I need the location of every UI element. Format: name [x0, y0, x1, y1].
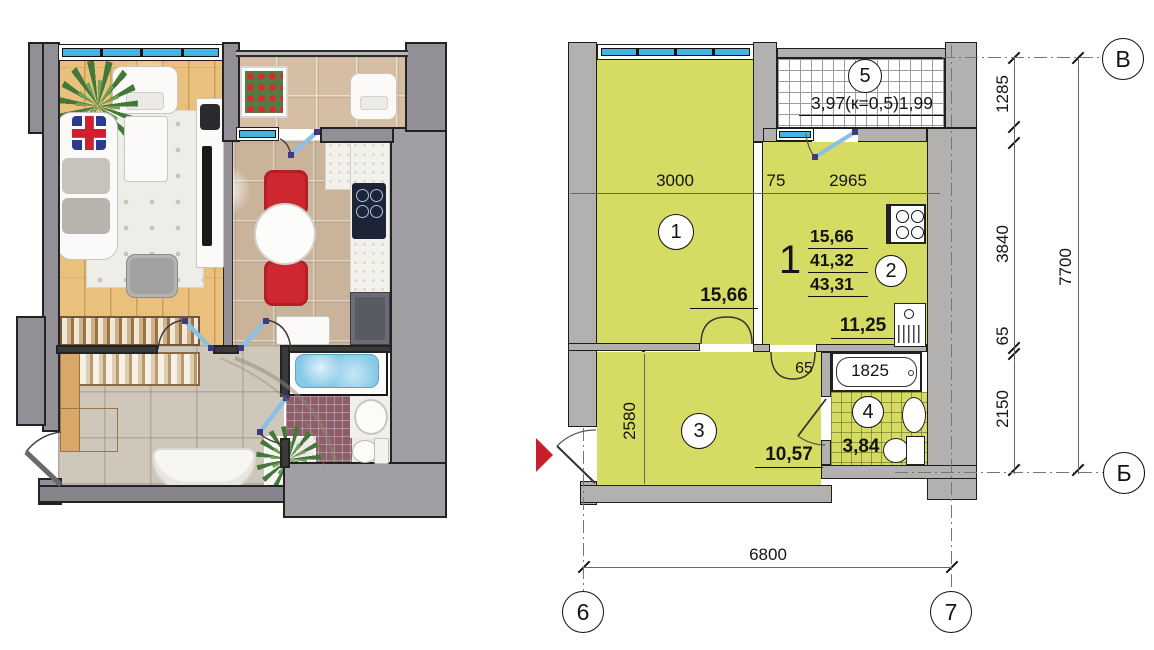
sink-icon — [894, 303, 926, 347]
wall — [56, 345, 158, 354]
wall — [568, 42, 597, 427]
room-number-balcony: 5 — [848, 59, 882, 93]
axis-label-v: В — [1102, 38, 1144, 80]
wall — [568, 343, 700, 351]
wall — [945, 42, 977, 128]
dimension-line-hall — [644, 354, 645, 484]
dim-7700: 7700 — [1056, 237, 1076, 297]
wall — [821, 352, 831, 397]
toilet-tank-icon — [374, 438, 389, 464]
floor-plan-sheet: 1 2 3 4 5 15,66 11,25 10,57 3,84 3,97(к=… — [0, 0, 1154, 650]
dining-table-icon — [254, 203, 316, 265]
wall — [280, 438, 290, 468]
room-number-living: 1 — [658, 214, 694, 250]
room-number-kitchen: 2 — [875, 255, 907, 287]
dim-65-right: 65 — [993, 306, 1013, 366]
stove-icon — [886, 204, 926, 244]
bathtub-icon — [286, 346, 388, 396]
entry-arrow-icon — [536, 438, 553, 472]
wall — [753, 42, 777, 142]
area-balcony: 3,97(к=0,5)1,99 — [799, 93, 945, 116]
balcony-door-opening — [812, 128, 858, 142]
dim-1285: 1285 — [993, 64, 1013, 124]
flower-box-icon — [240, 66, 288, 118]
summary-areas: 15,66 41,32 43,31 — [808, 226, 868, 297]
wall — [16, 316, 46, 426]
summary-room-count: 1 — [778, 238, 802, 286]
window-mullion — [636, 48, 639, 56]
axis-label-7: 7 — [930, 591, 972, 633]
coffee-table-icon — [124, 116, 168, 182]
dimension-line-bottom — [584, 567, 952, 568]
washbasin-icon — [902, 397, 926, 433]
sofa-cushion-icon — [62, 158, 110, 194]
union-jack-pillow-icon — [72, 116, 106, 150]
area-hall: 10,57 — [755, 444, 823, 468]
window-mullion — [140, 48, 143, 57]
area-bath: 3,84 — [836, 436, 886, 458]
bathtub-length-label: 1825 — [840, 361, 900, 381]
area-kitchen: 11,25 — [831, 315, 895, 339]
dim-6800: 6800 — [738, 545, 798, 565]
axis-label-6: 6 — [562, 591, 604, 633]
dim-2580: 2580 — [620, 391, 640, 451]
wall — [280, 345, 392, 353]
balcony-outer-wall — [777, 48, 947, 58]
window-mullion — [100, 48, 103, 57]
axis-line-7 — [951, 45, 952, 591]
kitchen-sink-unit-icon — [350, 292, 390, 345]
stove-icon — [352, 183, 386, 239]
wall — [580, 485, 832, 503]
wall — [283, 462, 447, 518]
chair-pillow-icon — [360, 96, 388, 110]
drawer-unit-icon — [60, 408, 118, 452]
window-mullion — [181, 48, 184, 57]
dimension-line-right-2 — [1078, 58, 1079, 474]
wall — [390, 127, 447, 518]
wall — [320, 127, 394, 143]
window-glass — [239, 130, 276, 138]
window-mullion — [712, 48, 715, 56]
washbasin-icon — [354, 399, 388, 435]
window-glass — [779, 131, 811, 138]
wall — [280, 345, 290, 397]
wall — [405, 42, 447, 132]
summary-apartment-area: 41,32 — [808, 249, 868, 273]
cabinet-icon — [276, 316, 330, 345]
speaker-icon — [200, 104, 220, 130]
ottoman-icon — [126, 254, 178, 298]
wardrobe-icon — [78, 352, 200, 386]
dimension-line-top — [570, 193, 940, 194]
summary-total-area: 43,31 — [808, 273, 868, 297]
dim-75: 75 — [760, 171, 792, 191]
sofa-cushion-icon — [62, 198, 110, 234]
wall — [213, 345, 239, 354]
axis-line-b — [895, 472, 1103, 473]
dim-65-wall: 65 — [790, 360, 818, 378]
wardrobe-icon — [60, 316, 200, 346]
axis-label-b: Б — [1103, 452, 1145, 494]
dim-3840: 3840 — [993, 214, 1013, 274]
balcony-rail — [236, 50, 408, 57]
chair-icon — [264, 260, 308, 306]
dim-3000: 3000 — [638, 171, 712, 191]
wall — [753, 344, 770, 352]
wall — [38, 485, 294, 503]
tv-icon — [202, 146, 212, 246]
window-mullion — [674, 48, 677, 56]
dimension-line-right-1 — [1014, 58, 1015, 474]
area-living: 15,66 — [690, 285, 758, 309]
room-number-bath: 4 — [852, 396, 884, 428]
room-number-hall: 3 — [681, 413, 717, 449]
dim-2150: 2150 — [993, 379, 1013, 439]
dim-2965: 2965 — [812, 171, 884, 191]
toilet-tank-icon — [906, 436, 925, 465]
summary-living-area: 15,66 — [808, 226, 868, 249]
